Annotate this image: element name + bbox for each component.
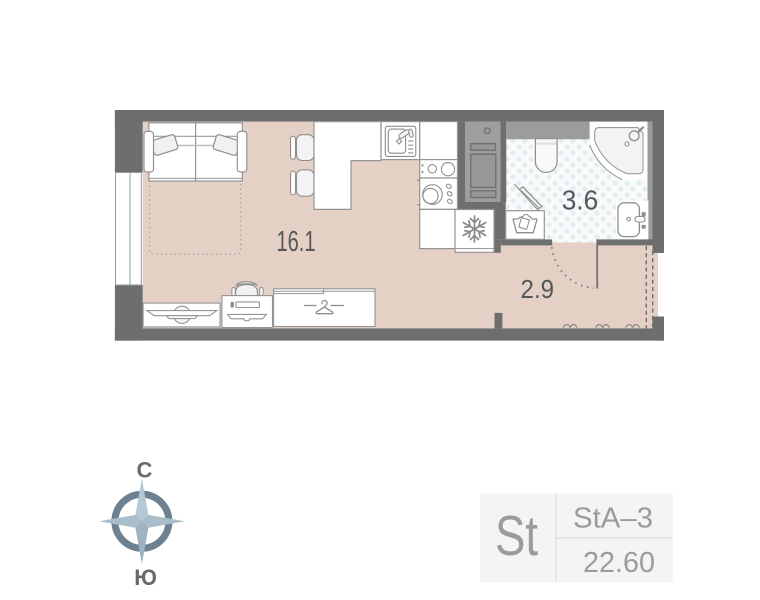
svg-text:3.6: 3.6 [562,184,599,215]
svg-text:St: St [495,504,538,568]
svg-text:Ю: Ю [134,565,157,590]
svg-text:2.9: 2.9 [521,276,555,304]
svg-text:С: С [136,458,152,483]
svg-text:16.1: 16.1 [277,226,316,258]
svg-text:22.60: 22.60 [583,547,655,579]
svg-text:StA–3: StA–3 [573,503,653,535]
